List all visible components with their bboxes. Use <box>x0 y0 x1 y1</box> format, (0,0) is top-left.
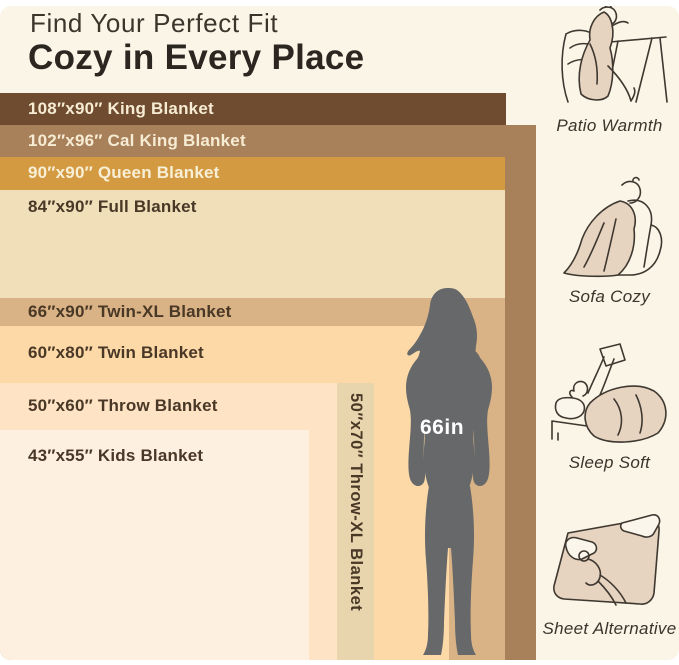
sheet-alternative-illustration <box>547 507 673 611</box>
blanket-label-kids: 43″x55″ Kids Blanket <box>28 446 203 466</box>
person-silhouette-graphic <box>393 284 513 658</box>
blanket-label-twin: 60″x80″ Twin Blanket <box>28 343 204 363</box>
blanket-label-throw: 50″x60″ Throw Blanket <box>28 396 218 416</box>
use-case-label-sleep: Sleep Soft <box>569 453 650 473</box>
use-case-sofa: Sofa Cozy <box>540 175 679 307</box>
blanket-label-cal-king: 102″x96″ Cal King Blanket <box>28 131 246 151</box>
header-kicker: Find Your Perfect Fit <box>30 8 278 39</box>
use-case-patio: Patio Warmth <box>540 6 679 136</box>
blanket-label-throw-xl: 50″x70″ Throw-XL Blanket <box>337 383 374 660</box>
blanket-label-twin-xl: 66″x90″ Twin-XL Blanket <box>28 302 232 322</box>
use-case-label-sheet: Sheet Alternative <box>543 619 677 639</box>
use-case-label-sofa: Sofa Cozy <box>569 287 650 307</box>
silhouette-legs <box>423 486 476 655</box>
cream-panel: 108″x90″ King Blanket102″x96″ Cal King B… <box>0 6 679 660</box>
use-case-label-patio: Patio Warmth <box>556 116 662 136</box>
sofa-cozy-illustration <box>547 175 673 279</box>
use-case-sleep: Sleep Soft <box>540 341 679 473</box>
blanket-size-infographic: 108″x90″ King Blanket102″x96″ Cal King B… <box>0 0 679 665</box>
page-title: Cozy in Every Place <box>28 38 364 78</box>
silhouette-right-arm <box>473 356 492 486</box>
blanket-label-king: 108″x90″ King Blanket <box>28 99 214 119</box>
blanket-label-queen: 90″x90″ Queen Blanket <box>28 163 220 183</box>
blanket-label-full: 84″x90″ Full Blanket <box>28 197 197 217</box>
use-case-sheet: Sheet Alternative <box>540 507 679 639</box>
patio-warmth-illustration <box>547 6 673 108</box>
person-height-label: 66in <box>420 416 464 440</box>
sleep-soft-illustration <box>547 341 673 445</box>
